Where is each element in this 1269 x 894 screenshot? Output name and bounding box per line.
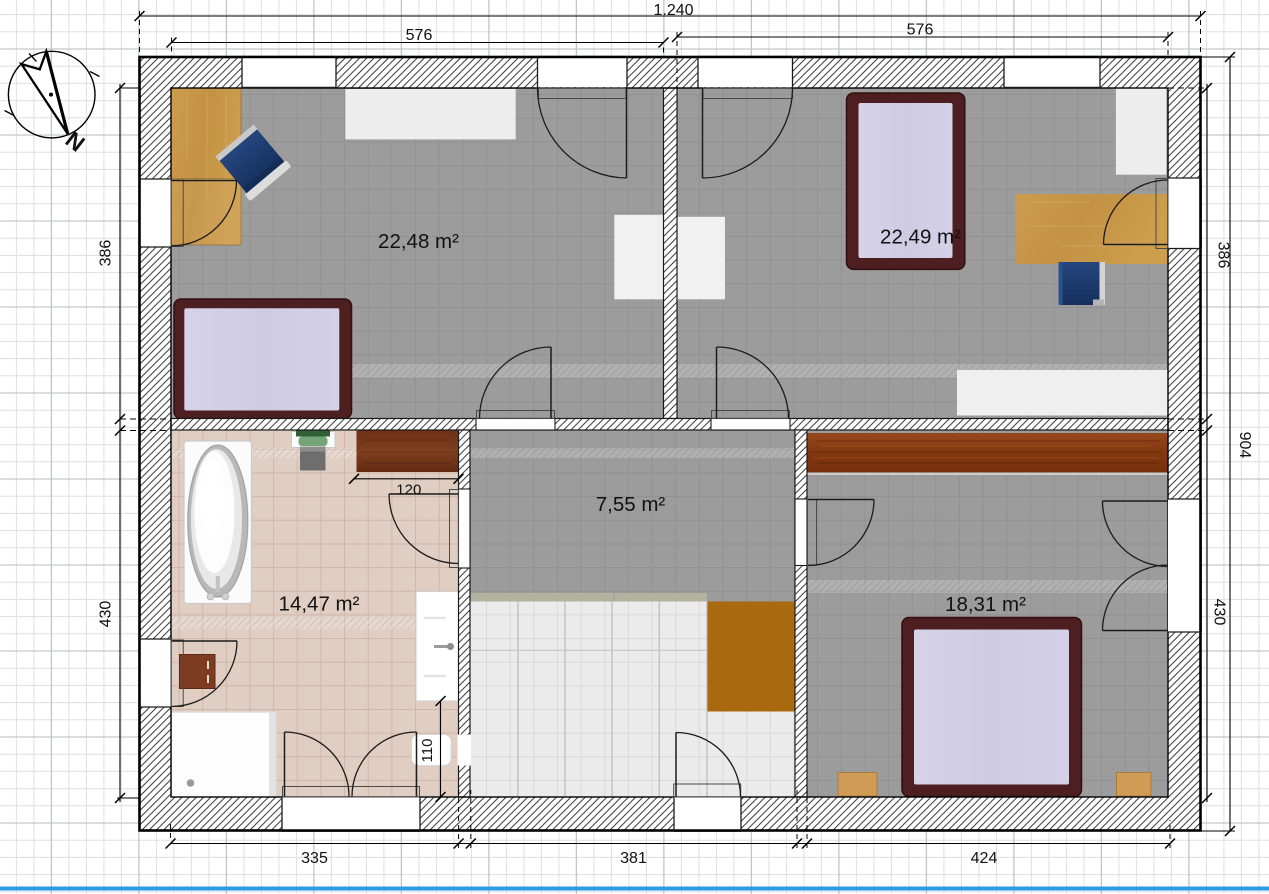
svg-text:22,48 m²: 22,48 m² [378,230,459,253]
svg-text:1.240: 1.240 [653,2,693,19]
svg-text:386: 386 [1215,242,1232,269]
svg-text:14,47 m²: 14,47 m² [279,593,360,616]
svg-text:18,31 m²: 18,31 m² [945,593,1026,616]
svg-text:386: 386 [98,240,115,267]
svg-text:110: 110 [419,739,436,763]
svg-text:120: 120 [396,482,421,499]
svg-text:430: 430 [98,601,115,628]
svg-text:430: 430 [1211,599,1228,626]
svg-text:904: 904 [1236,432,1253,459]
svg-text:576: 576 [907,22,934,39]
svg-text:424: 424 [971,850,998,867]
svg-text:7,55 m²: 7,55 m² [596,493,666,516]
svg-text:381: 381 [620,850,647,867]
svg-text:576: 576 [406,27,433,44]
svg-text:22,49 m²: 22,49 m² [880,226,961,249]
svg-text:335: 335 [301,850,328,867]
